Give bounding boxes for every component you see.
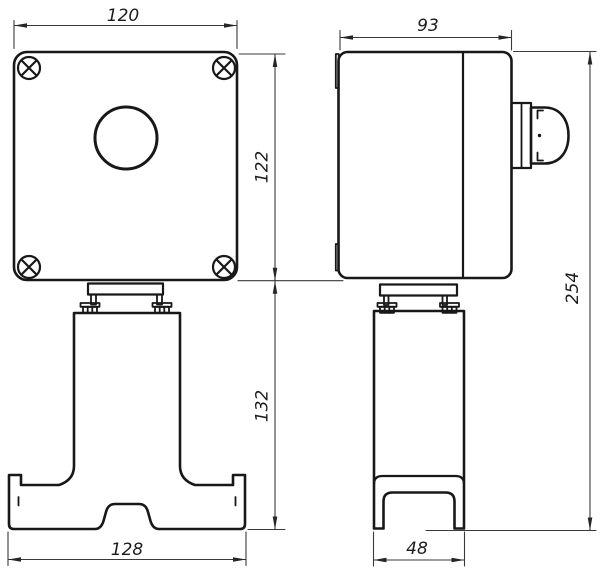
dim-front-base-width: 128 (8, 532, 246, 566)
side-neck-flange (378, 285, 460, 313)
side-enclosure-outline (339, 52, 512, 278)
dim-label-128: 128 (111, 540, 144, 560)
dim-label-120: 120 (107, 6, 139, 26)
side-view (336, 52, 569, 529)
dim-side-foot-width: 48 (374, 532, 465, 566)
dim-label-48: 48 (406, 539, 428, 559)
drawing-page: 120 93 122 132 128 (0, 0, 600, 572)
screw-top-right-icon (213, 57, 235, 79)
dimensions: 120 93 122 132 128 (8, 6, 596, 566)
front-pedestal (9, 313, 245, 529)
side-dome-button (512, 103, 569, 168)
dim-label-122: 122 (253, 151, 273, 183)
dim-front-stand-height: 132 (248, 281, 285, 530)
dim-label-93: 93 (417, 16, 439, 36)
dim-front-width: 120 (14, 6, 237, 49)
dim-label-254: 254 (563, 272, 583, 304)
screw-bottom-left-icon (18, 256, 40, 278)
front-button-hole (95, 107, 157, 169)
front-enclosure-outline (14, 52, 237, 280)
dim-side-depth: 93 (340, 16, 512, 50)
screw-top-left-icon (18, 57, 40, 79)
side-pedestal (374, 311, 464, 529)
dim-label-132: 132 (253, 390, 273, 422)
dim-front-box-height: 122 (239, 54, 285, 281)
screw-bottom-right-icon (213, 256, 235, 278)
drawing-canvas: 120 93 122 132 128 (0, 0, 600, 572)
front-view (9, 52, 245, 529)
side-base-curve (374, 476, 464, 484)
front-neck-flange (81, 284, 172, 313)
